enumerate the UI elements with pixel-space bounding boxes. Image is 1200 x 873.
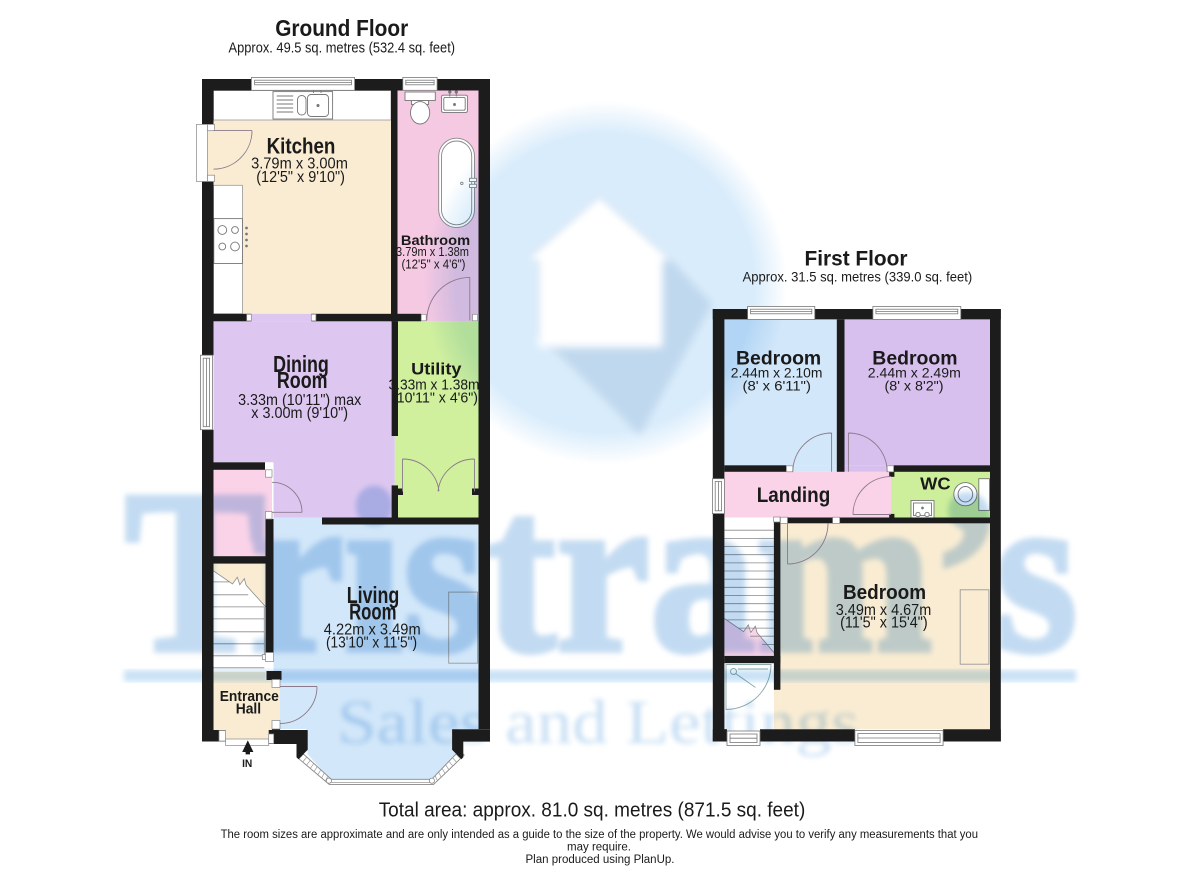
- svg-text:(8' x 6'11"): (8' x 6'11"): [743, 378, 811, 393]
- svg-text:Room: Room: [349, 598, 396, 624]
- svg-text:Ground Floor: Ground Floor: [275, 15, 408, 41]
- svg-text:(11'5" x 15'4"): (11'5" x 15'4"): [840, 614, 928, 631]
- svg-text:Total area: approx. 81.0 sq. m: Total area: approx. 81.0 sq. metres (871…: [379, 799, 806, 822]
- svg-text:(12'5" x 9'10"): (12'5" x 9'10"): [256, 169, 345, 186]
- svg-text:may require.: may require.: [567, 841, 631, 853]
- svg-text:Approx. 31.5 sq. metres (339.0: Approx. 31.5 sq. metres (339.0 sq. feet): [743, 270, 973, 285]
- svg-text:IN: IN: [242, 758, 252, 770]
- svg-text:Landing: Landing: [757, 482, 831, 507]
- svg-text:First Floor: First Floor: [805, 246, 909, 270]
- svg-text:Plan produced using PlanUp.: Plan produced using PlanUp.: [526, 854, 675, 866]
- svg-text:The room sizes are approximate: The room sizes are approximate and are o…: [221, 829, 978, 841]
- svg-text:Room: Room: [277, 367, 328, 393]
- svg-text:Utility: Utility: [411, 360, 462, 379]
- svg-text:x 3.00m (9'10"): x 3.00m (9'10"): [251, 405, 348, 422]
- svg-text:Approx. 49.5 sq. metres (532.4: Approx. 49.5 sq. metres (532.4 sq. feet): [229, 41, 456, 57]
- svg-text:Hall: Hall: [236, 702, 261, 718]
- svg-text:WC: WC: [920, 474, 950, 494]
- svg-text:(8' x 8'2"): (8' x 8'2"): [885, 378, 944, 393]
- svg-text:(10'11" x 4'6"): (10'11" x 4'6"): [392, 391, 478, 407]
- svg-text:Sales and Lettings: Sales and Lettings: [337, 689, 859, 757]
- svg-text:(12'5" x 4'6"): (12'5" x 4'6"): [402, 256, 466, 271]
- svg-text:Bedroom: Bedroom: [843, 582, 926, 604]
- svg-text:(13'10" x 11'5"): (13'10" x 11'5"): [326, 635, 417, 652]
